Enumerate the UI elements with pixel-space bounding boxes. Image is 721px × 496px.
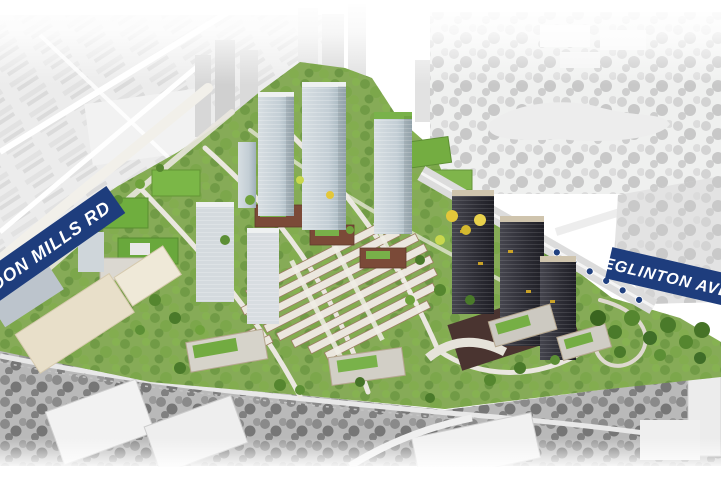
bottom-white-margin <box>0 467 721 496</box>
bottom-fade <box>0 438 721 470</box>
aerial-masterplan-rendering: DON MILLS RD EGLINTON AVE <box>0 0 721 496</box>
rendering-canvas: DON MILLS RD EGLINTON AVE <box>0 0 721 496</box>
top-fade <box>0 0 721 85</box>
